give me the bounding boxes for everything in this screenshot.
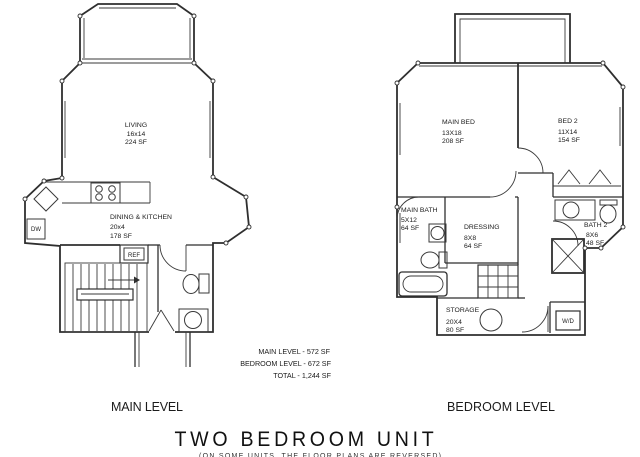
main-bed-name: MAIN BED xyxy=(442,119,475,126)
sink-icon xyxy=(429,224,446,242)
washer-dryer-label: W/D xyxy=(562,319,574,325)
living-name: LIVING xyxy=(125,122,147,129)
storage-area: 80 SF xyxy=(446,327,464,334)
shower-icon xyxy=(552,239,584,273)
bath2-label: BATH 2 8X6 48 SF xyxy=(584,222,608,247)
bay-window xyxy=(80,8,194,63)
deck xyxy=(455,14,570,63)
closet-hanger-icon xyxy=(558,170,580,184)
bed2-label: BED 2 11X14 154 SF xyxy=(558,118,580,144)
area-summary: MAIN LEVEL - 572 SF BEDROOM LEVEL - 672 … xyxy=(240,347,331,380)
living-windows xyxy=(65,101,210,158)
door-swing-icon xyxy=(490,171,516,197)
bedroom-divider-wall xyxy=(518,63,553,173)
floor-plan-page: DW REF xyxy=(0,0,640,457)
closet-hanger-icon xyxy=(589,170,611,184)
refrigerator: REF xyxy=(120,245,148,263)
bed2-area: 154 SF xyxy=(558,137,580,144)
bath2-area: 48 SF xyxy=(586,240,604,247)
door-swing-icon xyxy=(522,306,548,332)
living-area: 224 SF xyxy=(125,139,147,146)
storage-label: STORAGE 20X4 80 SF xyxy=(446,307,480,334)
bath2-name: BATH 2 xyxy=(584,222,608,229)
dressing-dims: 8X8 xyxy=(464,235,476,242)
powder-room xyxy=(148,245,213,332)
dining-kitchen-label: DINING & KITCHEN 20x4 178 SF xyxy=(110,214,172,240)
toilet-icon xyxy=(421,252,447,268)
bed2-closet xyxy=(553,170,623,197)
bed2-name: BED 2 xyxy=(558,118,578,125)
toilet-icon xyxy=(183,274,209,294)
wall-joint-knobs xyxy=(23,14,251,245)
dining-area: 178 SF xyxy=(110,233,132,240)
toilet-icon xyxy=(600,200,617,223)
vanity-sink-icon xyxy=(555,200,595,220)
main-level-plan: DW REF xyxy=(23,4,251,367)
living-room-label: LIVING 16x14 224 SF xyxy=(125,122,147,146)
dressing-name: DRESSING xyxy=(464,224,500,231)
door-swing-icon xyxy=(160,245,186,271)
refrigerator-label: REF xyxy=(128,253,140,259)
sink-icon xyxy=(179,309,208,332)
summary-bedroom-level: BEDROOM LEVEL - 672 SF xyxy=(240,359,331,368)
bedroom-level-caption: BEDROOM LEVEL xyxy=(447,400,555,414)
dressing-room xyxy=(445,171,518,265)
main-bath-name: MAIN BATH xyxy=(401,207,438,214)
floor-plan-drawing: DW REF xyxy=(0,0,640,457)
main-bed-label: MAIN BED 13X18 208 SF xyxy=(442,119,475,145)
page-title: TWO BEDROOM UNIT xyxy=(175,428,438,451)
dining-name: DINING & KITCHEN xyxy=(110,214,172,221)
stairs-bedroom-level xyxy=(478,265,518,298)
bed2-dims: 11X14 xyxy=(558,129,577,136)
dishwasher-label: DW xyxy=(31,227,41,233)
kitchen-sink-icon xyxy=(34,187,58,211)
dishwasher: DW xyxy=(27,219,45,239)
main-bed-area: 208 SF xyxy=(442,138,464,145)
dressing-area: 64 SF xyxy=(464,243,482,250)
reversed-plans-note: (ON SOME UNITS, THE FLOOR PLANS ARE REVE… xyxy=(199,453,441,457)
summary-total: TOTAL - 1,244 SF xyxy=(273,371,331,380)
dressing-label: DRESSING 8X8 64 SF xyxy=(464,224,500,250)
bath2-dims: 8X6 xyxy=(586,232,598,239)
storage-name: STORAGE xyxy=(446,307,480,314)
door-swing-icon xyxy=(518,148,543,173)
summary-main-level: MAIN LEVEL - 572 SF xyxy=(258,347,330,356)
dining-dims: 20x4 xyxy=(110,224,125,231)
main-bath-label: MAIN BATH 5X12 64 SF xyxy=(401,207,438,232)
door-swing-icon xyxy=(553,221,578,246)
main-bath-dims: 5X12 xyxy=(401,217,417,224)
entry-door xyxy=(149,310,174,331)
main-level-caption: MAIN LEVEL xyxy=(111,400,183,414)
bathtub-icon xyxy=(399,272,447,296)
main-bed-dims: 13X18 xyxy=(442,130,462,137)
storage-dims: 20X4 xyxy=(446,319,462,326)
washer-dryer: W/D xyxy=(550,302,585,333)
water-heater-icon xyxy=(480,309,502,331)
living-dims: 16x14 xyxy=(127,131,146,138)
stove-icon xyxy=(91,183,120,203)
main-bath-area: 64 SF xyxy=(401,225,419,232)
entry-porch xyxy=(135,332,190,367)
bedroom-level-plan: W/D MAIN BED 13X18 208 SF BED 2 11X14 15… xyxy=(395,14,625,335)
